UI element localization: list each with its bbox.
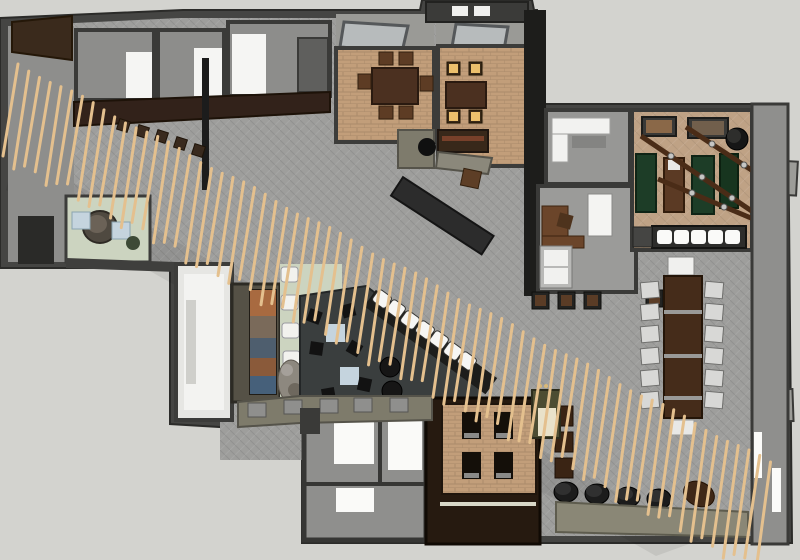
brown-armchair xyxy=(460,168,481,188)
cabinet-dot xyxy=(544,384,548,388)
communal-chair xyxy=(704,325,723,343)
bar-pad xyxy=(657,230,672,244)
band-table xyxy=(248,403,266,417)
communal-chair xyxy=(640,325,659,343)
bar-pad xyxy=(674,230,689,244)
dining-1-chair xyxy=(399,106,413,119)
lounge-chair xyxy=(357,377,372,392)
reception-table-blue xyxy=(72,212,90,229)
communal-chair xyxy=(704,303,723,321)
cylinder-pouf-top xyxy=(617,488,633,500)
bar-pad xyxy=(725,230,740,244)
reception-plant xyxy=(126,236,140,250)
right-window xyxy=(772,468,781,512)
bar-pad xyxy=(691,230,706,244)
band-table xyxy=(390,398,408,412)
dining-1-chair xyxy=(399,52,413,65)
dining-2-lit-seat xyxy=(449,112,458,121)
communal-chair xyxy=(704,281,723,299)
hall-stool-top xyxy=(587,295,598,306)
restroom-mat xyxy=(336,488,374,512)
communal-chair xyxy=(640,281,659,299)
rod-knob xyxy=(689,190,695,196)
cylinder-pouf-top xyxy=(555,483,571,495)
dining-1-chair xyxy=(379,106,393,119)
gallery-bench xyxy=(186,300,196,384)
wood-console-stripe xyxy=(442,136,484,141)
mural-swatch xyxy=(250,376,276,394)
office-2-door-mat xyxy=(588,194,612,236)
round-table-black xyxy=(418,138,436,156)
restroom-mat xyxy=(388,420,422,470)
lectern xyxy=(668,257,694,275)
floor-plan xyxy=(0,0,800,560)
corner-pillar xyxy=(300,408,320,434)
communal-table-band xyxy=(664,396,702,400)
wall-bench-seat xyxy=(282,323,299,338)
communal-table-band xyxy=(664,354,702,358)
band-table xyxy=(320,399,338,413)
dining-2-lit-seat xyxy=(471,112,480,121)
hall-stool-top xyxy=(535,295,546,306)
bar-pad xyxy=(708,230,723,244)
dining-2-table xyxy=(446,82,486,108)
lounge-table-blue xyxy=(340,367,359,385)
dining-2-lit-seat xyxy=(449,64,458,73)
communal-chair xyxy=(640,369,659,387)
communal-chair xyxy=(704,369,723,387)
seat-well-step xyxy=(464,433,479,438)
stone xyxy=(281,364,293,376)
daybed-cushion xyxy=(544,268,568,284)
rod-knob xyxy=(699,174,705,180)
shuffleboard-table xyxy=(636,154,656,212)
kitchen-sink xyxy=(452,6,468,16)
restroom-mat xyxy=(334,422,374,464)
hall-stool-top xyxy=(561,295,572,306)
kitchen-west-mat xyxy=(232,34,266,94)
structural-column xyxy=(202,58,209,190)
platform-light-strip xyxy=(440,502,536,506)
bar-ribbed-end xyxy=(633,227,652,247)
band-table xyxy=(354,398,372,412)
west-armchair xyxy=(555,458,573,478)
office-1-counter-gray xyxy=(572,136,606,148)
rod-knob xyxy=(709,141,715,147)
left-wall-doorway xyxy=(18,216,54,264)
floor-plan-svg xyxy=(0,0,800,560)
dining-1-chair xyxy=(379,52,393,65)
kitchen-west-counter xyxy=(298,38,328,92)
daybed-cushion xyxy=(544,250,568,266)
storage-room-1-mat xyxy=(126,52,152,98)
office-1-counter xyxy=(552,118,610,134)
rod-knob xyxy=(741,162,747,168)
band-table xyxy=(284,400,302,414)
communal-chair xyxy=(640,303,659,321)
office-1-counter xyxy=(552,134,568,162)
rod-knob xyxy=(668,153,674,159)
cylinder-pouf-top xyxy=(586,485,602,497)
dining-1-chair xyxy=(420,76,433,91)
rod-knob xyxy=(729,195,735,201)
dining-1-table xyxy=(372,68,418,104)
seat-well-step xyxy=(464,473,479,478)
games-picture-art xyxy=(646,120,672,133)
seat-well-step xyxy=(496,473,511,478)
dining-1-chair xyxy=(358,74,371,89)
communal-chair xyxy=(704,391,723,409)
lounge-chair xyxy=(309,341,324,356)
communal-table-band xyxy=(664,310,702,314)
communal-chair xyxy=(704,347,723,365)
kitchen-sink xyxy=(474,6,490,16)
communal-chair xyxy=(640,347,659,365)
stair-top-left xyxy=(12,16,72,60)
dining-2-lit-seat xyxy=(471,64,480,73)
drum-light-top xyxy=(727,129,741,143)
rod-knob xyxy=(721,204,727,210)
